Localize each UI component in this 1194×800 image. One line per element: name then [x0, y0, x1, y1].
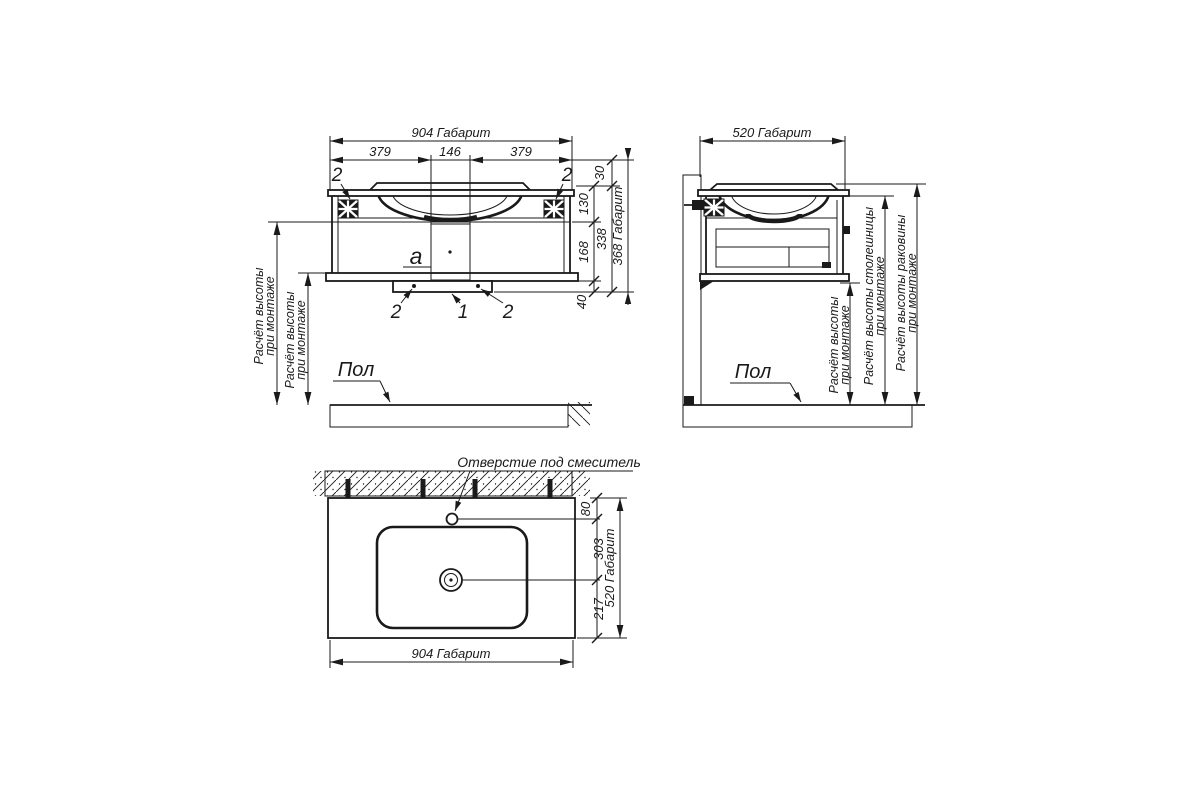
floor-hatch	[330, 405, 568, 427]
foot-point-right	[476, 284, 480, 288]
callout-channel-a: a	[410, 243, 423, 269]
cabinet-bottom-side	[700, 274, 849, 281]
dim-130: 130	[576, 192, 591, 214]
dim-146: 146	[439, 144, 461, 159]
drawer-slide-stop	[822, 262, 831, 268]
side-view: 520 Габарит Расчёт высоты при монтаже Ра…	[683, 125, 926, 427]
drawing-canvas: 904 Габарит 379 146 379 2 2 a 2 1 2	[0, 0, 1194, 800]
front-view: 904 Габарит 379 146 379 2 2 a 2 1 2	[252, 125, 634, 427]
floor-label-front: Пол	[338, 359, 374, 381]
dim-40: 40	[574, 294, 589, 309]
callout-bracket-right: 2	[561, 165, 573, 186]
technical-drawing-vanity: 904 Габарит 379 146 379 2 2 a 2 1 2	[0, 0, 1194, 800]
faucet-hole-label: Отверстие под смеситель	[457, 454, 641, 470]
bottom-wall-wedge	[700, 281, 714, 290]
dim-379-right: 379	[510, 144, 532, 159]
counter-note-line2: при монтаже	[873, 256, 887, 335]
mount-bracket-side	[684, 199, 724, 216]
basin-note-line2: при монтаже	[905, 253, 919, 332]
mount-bracket-left	[338, 200, 358, 218]
callout-bracket-left: 2	[331, 165, 343, 186]
dim-379-left: 379	[369, 144, 391, 159]
dim-368-gabarit: 368 Габарит	[610, 186, 625, 265]
dim-338: 338	[594, 227, 609, 249]
dim-520-gabarit: 520 Габарит	[732, 125, 811, 140]
mount-bracket-right	[544, 200, 564, 218]
mount-note-inner-line2: при монтаже	[294, 300, 308, 379]
floor-label-side: Пол	[735, 361, 771, 383]
sink-rim	[370, 183, 530, 190]
top-view: Отверстие под смеситель 80 303 217 520 Г…	[313, 454, 641, 668]
callout-foot-left: 2	[390, 302, 402, 323]
side-mount-note-line2: при монтаже	[838, 305, 852, 384]
drawer-box	[716, 229, 829, 267]
dim-80: 80	[578, 501, 593, 516]
door-handle	[843, 226, 850, 234]
dim-904-gabarit-top: 904 Габарит	[411, 646, 490, 661]
wall-floor-anchor	[684, 396, 694, 405]
faucet-hole	[447, 514, 458, 525]
mount-note-outer-line2: при монтаже	[263, 276, 277, 355]
countertop-front	[328, 190, 574, 196]
foot-point-left	[412, 284, 416, 288]
callout-foot-right: 2	[502, 302, 514, 323]
countertop-side	[698, 190, 849, 196]
dim-520-gabarit-top: 520 Габарит	[602, 528, 617, 607]
dim-30: 30	[592, 165, 607, 180]
callout-drain: 1	[458, 302, 469, 323]
dim-904-gabarit: 904 Габарит	[411, 125, 490, 140]
dim-168: 168	[576, 240, 591, 262]
floor-hatch-side	[683, 405, 912, 427]
